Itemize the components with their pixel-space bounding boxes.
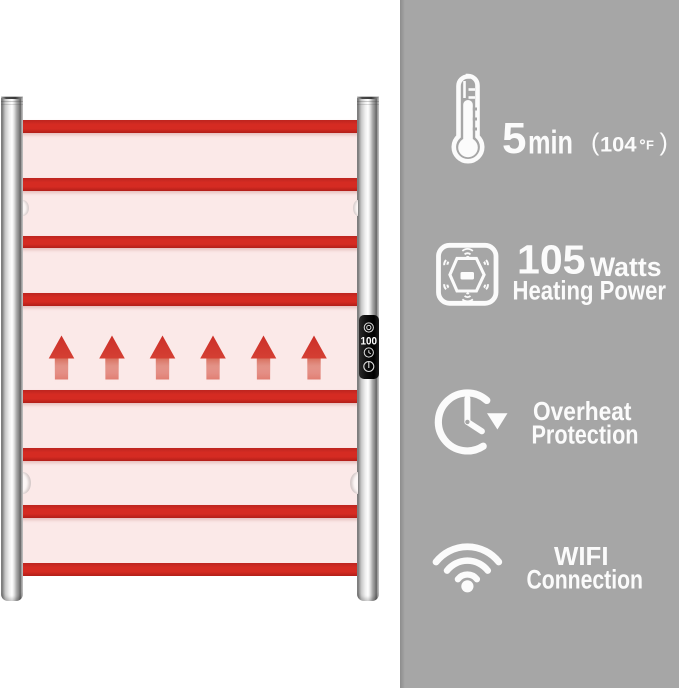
svg-text:Protection: Protection (532, 422, 639, 450)
svg-text:5: 5 (502, 114, 527, 163)
svg-text:(: ( (591, 129, 600, 157)
svg-text:Connection: Connection (527, 564, 644, 594)
svg-text:min: min (528, 124, 573, 162)
svg-text:): ) (660, 129, 668, 157)
svg-text:100: 100 (361, 336, 378, 348)
svg-text:Heating Power: Heating Power (513, 276, 667, 306)
svg-text:F: F (646, 137, 654, 152)
svg-text:104: 104 (600, 132, 637, 156)
